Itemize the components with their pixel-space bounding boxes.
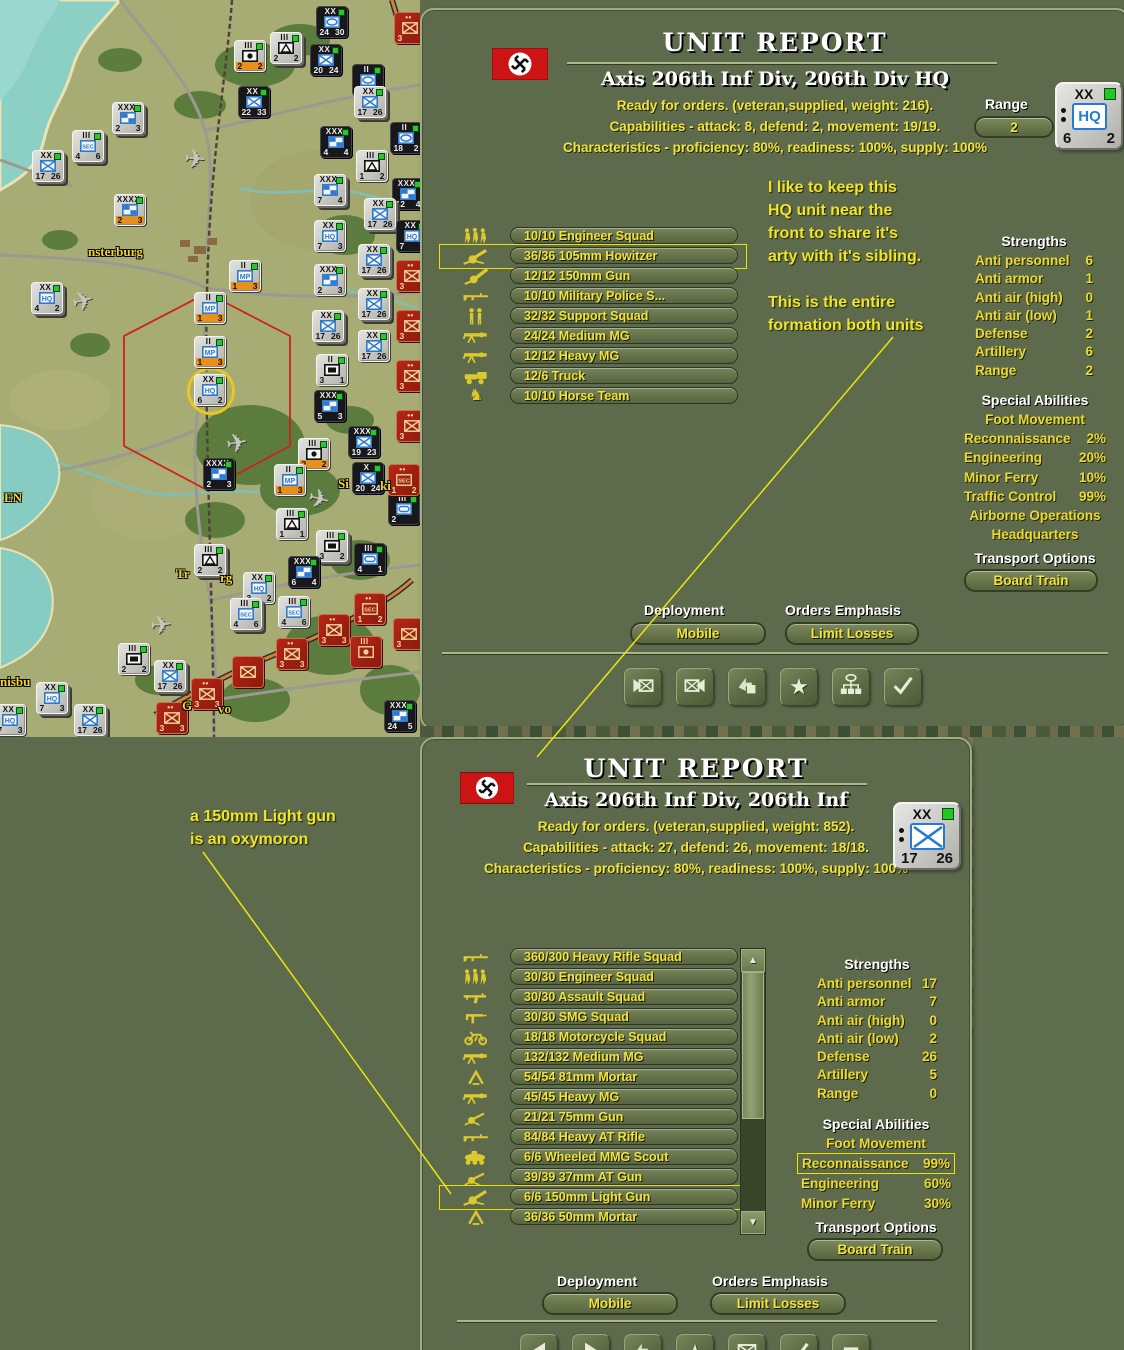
special-ability-row: Foot Movement — [797, 1134, 955, 1153]
counter-size-label: XX — [895, 806, 949, 822]
unit-item-button[interactable]: 6/6 Wheeled MMG Scout — [510, 1148, 738, 1165]
unit-item-button[interactable]: 132/132 Medium MG — [510, 1048, 738, 1065]
map-unit-counter[interactable]: XX2430 — [316, 6, 348, 38]
special-ability-row: Minor Ferry30% — [797, 1194, 955, 1213]
unit-list-item[interactable]: 12/6 Truck — [442, 367, 744, 386]
special-ability-row: Reconnaissance99% — [797, 1153, 955, 1174]
svg-text:SEC: SEC — [364, 608, 376, 614]
map-unit-counter[interactable]: XXX23 — [112, 102, 144, 134]
map-unit-counter[interactable]: ••3 — [396, 360, 420, 392]
map-unit-counter[interactable]: XXX74 — [314, 174, 346, 206]
atgun-icon — [448, 1168, 504, 1186]
unit-name: Axis 206th Inf Div, 206th Inf — [422, 789, 970, 811]
unit-item-button[interactable]: 10/10 Engineer Squad — [510, 227, 738, 244]
deployment-button[interactable]: Mobile — [542, 1292, 678, 1315]
strengths-block: Strengths Anti personnel6Anti armor1Anti… — [975, 233, 1093, 380]
transport-options-title: Transport Options — [960, 550, 1110, 566]
map-unit-counter[interactable]: XXX64 — [288, 556, 320, 588]
strength-row: Artillery5 — [817, 1066, 937, 1084]
strengths-title: Strengths — [817, 956, 937, 972]
button-row-divider — [442, 652, 1108, 654]
unit-list-item[interactable]: ♞10/10 Horse Team — [442, 387, 744, 406]
player-annotation-bottom: a 150mm Light gun is an oxymoron — [190, 805, 336, 851]
map-unit-counter[interactable]: ••33 — [276, 638, 308, 670]
bent-arrow-icon — [735, 673, 759, 702]
svg-text:HQ: HQ — [407, 234, 418, 241]
aircraft-icon: ✈ — [224, 428, 250, 457]
status-line: Ready for orders. (veteran,supplied, wei… — [422, 819, 970, 834]
map-unit-counter[interactable]: XXHQ73 — [0, 704, 26, 736]
map-unit-counter[interactable]: IIMP13 — [194, 336, 226, 368]
map-unit-counter[interactable]: XXXX23 — [203, 458, 235, 490]
strength-row: Anti air (low)1 — [975, 307, 1093, 325]
unit-list-item[interactable]: 6/6 Wheeled MMG Scout — [442, 1148, 744, 1167]
strength-row: Range2 — [975, 362, 1093, 380]
strength-row: Defense2 — [975, 325, 1093, 343]
unit-list-item[interactable]: 18/18 Motorcycle Squad — [442, 1028, 744, 1047]
star-button[interactable]: ★ — [676, 1334, 714, 1350]
strengths-block: Strengths Anti personnel17Anti armor7Ant… — [817, 956, 937, 1103]
special-ability-row: Headquarters — [960, 525, 1110, 544]
squad-walking-icon — [448, 968, 504, 986]
deployment-button[interactable]: Mobile — [630, 622, 766, 645]
special-abilities-block: Special Abilities Foot MovementReconnais… — [960, 392, 1110, 544]
unit-item-button[interactable]: 36/36 105mm Howitzer — [510, 247, 738, 264]
star-icon: ★ — [789, 676, 809, 699]
unit-list-item[interactable]: 12/12 150mm Gun — [442, 267, 744, 286]
svg-text:SEC: SEC — [240, 613, 252, 619]
map-unit-counter[interactable]: ••3 — [396, 260, 420, 292]
unit-item-button[interactable]: 18/18 Motorcycle Squad — [510, 1028, 738, 1045]
map-unit-counter[interactable]: ••3 — [396, 410, 420, 442]
unit-item-button[interactable]: 84/84 Heavy AT Rifle — [510, 1128, 738, 1145]
rect-icon — [839, 1339, 863, 1350]
counter-attack-value: 6 — [1063, 130, 1071, 147]
title-rule — [567, 62, 997, 64]
map-place-label: Tr — [176, 566, 189, 582]
unit-list-item[interactable]: 30/30 Engineer Squad — [442, 968, 744, 987]
step-dots — [899, 828, 904, 846]
svg-text:HQ: HQ — [47, 696, 58, 703]
map-unit-counter[interactable]: III11 — [276, 508, 308, 540]
svg-text:SEC: SEC — [398, 479, 410, 485]
org-chart-button[interactable] — [832, 668, 870, 706]
unit-list-item[interactable]: 30/30 SMG Squad — [442, 1008, 744, 1027]
map-unit-counter[interactable]: XXX1923 — [348, 426, 380, 458]
unit-box-icon — [735, 1339, 759, 1350]
svg-text:MP: MP — [285, 478, 296, 485]
unit-list-item[interactable]: 132/132 Medium MG — [442, 1048, 744, 1067]
map-unit-counter[interactable]: XXHQ73 — [314, 220, 346, 252]
unit-item-button[interactable]: 24/24 Medium MG — [510, 327, 738, 344]
unit-list-item[interactable]: 360/300 Heavy Rifle Squad — [442, 948, 744, 967]
map-place-label: rg — [220, 570, 232, 586]
map-place-label: nisbu — [0, 674, 30, 690]
strength-row: Anti personnel6 — [975, 252, 1093, 270]
unit-item-button[interactable]: 360/300 Heavy Rifle Squad — [510, 948, 738, 965]
scroll-up-button[interactable]: ▲ — [741, 949, 765, 972]
infantry-symbol — [910, 823, 945, 850]
map-unit-counter[interactable]: XX1726 — [358, 288, 390, 320]
mg-icon — [448, 1088, 504, 1106]
unit-list-item[interactable]: 24/24 Medium MG — [442, 327, 744, 346]
map-unit-counter[interactable]: II31 — [316, 354, 348, 386]
orders-emphasis-button[interactable]: Limit Losses — [785, 622, 919, 645]
unit-list-item[interactable]: 30/30 Assault Squad — [442, 988, 744, 1007]
map-unit-counter[interactable]: ••3 — [394, 12, 420, 44]
scroll-down-button[interactable]: ▼ — [741, 1211, 765, 1234]
right-tri-button[interactable] — [572, 1334, 610, 1350]
unit-list-item[interactable]: 36/36 105mm Howitzer — [442, 247, 744, 266]
unit-list-item[interactable]: 36/36 50mm Mortar — [442, 1208, 744, 1227]
range-value: 2 — [974, 116, 1054, 138]
strength-row: Anti armor1 — [975, 270, 1093, 288]
map-place-label: ki — [380, 478, 391, 494]
rifle-icon — [448, 287, 504, 305]
button-row-divider — [457, 1320, 937, 1322]
special-abilities-title: Special Abilities — [960, 392, 1110, 408]
map-unit-counter[interactable]: XX1726 — [32, 150, 64, 182]
characteristics-line: Characteristics - proficiency: 80%, read… — [422, 861, 970, 876]
unit-right-icon — [683, 673, 707, 702]
check-icon — [787, 1339, 811, 1350]
unit-item-button[interactable]: 39/39 37mm AT Gun — [510, 1168, 738, 1185]
map-unit-counter[interactable]: XXX53 — [314, 390, 346, 422]
assault-icon — [448, 988, 504, 1006]
app-window: XX2430III22III22XX2024II23XX1726II182XX2… — [0, 0, 1124, 1350]
gun-icon — [448, 267, 504, 285]
unit-left-button[interactable] — [624, 668, 662, 706]
special-ability-row: Traffic Control99% — [960, 487, 1110, 506]
capabilities-line: Capabilities - attack: 27, defend: 26, m… — [422, 840, 970, 855]
map-unit-counter[interactable]: XXHQ42 — [31, 282, 63, 314]
map-unit-counter[interactable]: IIMP13 — [274, 464, 306, 496]
truck-icon — [448, 367, 504, 385]
range-label: Range — [985, 96, 1028, 112]
map-gap — [420, 726, 1124, 737]
unit-item-button[interactable]: 30/30 Engineer Squad — [510, 968, 738, 985]
unit-right-button[interactable] — [676, 668, 714, 706]
moto-icon — [448, 1028, 504, 1046]
mg-icon — [448, 347, 504, 365]
map-unit-counter[interactable]: XX2024 — [310, 44, 342, 76]
map-unit-counter[interactable]: ••33 — [318, 614, 350, 646]
map-unit-counter[interactable]: III — [350, 636, 382, 668]
special-ability-row: Minor Ferry10% — [960, 468, 1110, 487]
map-unit-counter[interactable]: XXHQ7 — [396, 220, 420, 252]
map-unit-counter[interactable]: IIISEC46 — [72, 130, 104, 162]
mg-icon — [448, 327, 504, 345]
unit-item-button[interactable]: 12/12 150mm Gun — [510, 267, 738, 284]
deployment-label: Deployment — [557, 1273, 637, 1289]
special-ability-row: Reconnaissance2% — [960, 429, 1110, 448]
title-rule — [527, 783, 867, 785]
strength-row: Anti air (high)0 — [975, 289, 1093, 307]
unit-item-button[interactable]: 45/45 Heavy MG — [510, 1088, 738, 1105]
svg-text:MP: MP — [205, 350, 216, 357]
orders-emphasis-label: Orders Emphasis — [785, 602, 901, 618]
map-place-label: Si — [338, 476, 349, 492]
map-place-label: vo — [218, 701, 231, 717]
howitzer-icon — [448, 247, 504, 265]
map-unit-counter[interactable]: XXHQ62 — [194, 374, 226, 406]
map-unit-counter[interactable]: XX1726 — [358, 244, 390, 276]
rifle-icon — [448, 1128, 504, 1146]
atgun-icon — [448, 1108, 504, 1126]
special-ability-row: Engineering60% — [797, 1174, 955, 1193]
unit-counter-infantry[interactable]: XX 17 26 — [893, 802, 961, 870]
scout-car-icon — [448, 1148, 504, 1166]
unit-left-icon — [631, 673, 655, 702]
strength-row: Artillery6 — [975, 343, 1093, 361]
map-unit-counter[interactable]: II182 — [390, 122, 420, 154]
map-unit-counter[interactable]: XXXX23 — [114, 194, 146, 226]
unit-list-item[interactable]: 10/10 Military Police S... — [442, 287, 744, 306]
counter-move-value: 2 — [1107, 130, 1115, 147]
unit-list-item[interactable]: 21/21 75mm Gun — [442, 1108, 744, 1127]
unit-item-button[interactable]: 30/30 Assault Squad — [510, 988, 738, 1005]
strength-row: Anti air (low)2 — [817, 1030, 937, 1048]
map-unit-counter[interactable]: IIISEC46 — [278, 596, 310, 628]
right-tri-icon — [579, 1339, 603, 1350]
howitzer-icon — [448, 1188, 504, 1206]
board-train-button[interactable]: Board Train — [807, 1238, 943, 1261]
unit-list-item[interactable]: 39/39 37mm AT Gun — [442, 1168, 744, 1187]
rect-button[interactable] — [832, 1334, 870, 1350]
background-strip — [968, 737, 1124, 1350]
map-unit-counter[interactable]: XXX23 — [314, 264, 346, 296]
map-unit-counter[interactable]: XX1726 — [354, 86, 386, 118]
map-unit-counter[interactable]: XXX124 — [392, 178, 420, 210]
check-button[interactable] — [780, 1334, 818, 1350]
strength-row: Anti armor7 — [817, 993, 937, 1011]
svg-text:MP: MP — [240, 274, 251, 281]
map-unit-counter[interactable]: XX2233 — [238, 86, 270, 118]
org-chart-icon — [839, 673, 863, 702]
map-unit-counter[interactable]: IIMP13 — [229, 260, 261, 292]
mg-icon — [448, 1048, 504, 1066]
svg-text:SEC: SEC — [82, 145, 94, 151]
unit-item-button[interactable]: 54/54 81mm Mortar — [510, 1068, 738, 1085]
transport-options-title: Transport Options — [797, 1219, 955, 1235]
unit-list-item[interactable]: 10/10 Engineer Squad — [442, 227, 744, 246]
map-unit-counter[interactable]: XXX245 — [384, 700, 416, 732]
special-abilities-title: Special Abilities — [797, 1116, 955, 1132]
unit-report-panel-bottom: UNIT REPORT Axis 206th Inf Div, 206th In… — [420, 737, 972, 1350]
map-unit-counter[interactable]: XX1726 — [154, 660, 186, 692]
unit-item-button[interactable]: 32/32 Support Squad — [510, 307, 738, 324]
unit-item-button[interactable]: 10/10 Horse Team — [510, 387, 738, 404]
map-unit-counter[interactable]: ••SEC12 — [388, 464, 420, 496]
map-unit-counter[interactable]: ••3 — [396, 310, 420, 342]
special-abilities-block: Special Abilities Foot MovementReconnais… — [797, 1116, 955, 1213]
scrollbar-thumb[interactable] — [742, 972, 764, 1119]
unit-counter-hq[interactable]: XX HQ 6 2 — [1055, 82, 1123, 150]
special-ability-row: Foot Movement — [960, 410, 1110, 429]
map-unit-counter[interactable]: III41 — [354, 543, 386, 575]
smg-icon — [448, 1008, 504, 1026]
map-unit-counter[interactable] — [232, 656, 264, 688]
squad-standing-icon — [448, 307, 504, 325]
step-dots — [1061, 108, 1066, 126]
bent-arrow-button[interactable] — [624, 1334, 662, 1350]
unit-item-button[interactable]: 36/36 50mm Mortar — [510, 1208, 738, 1225]
special-ability-row: Engineering20% — [960, 448, 1110, 467]
map-unit-counter[interactable]: IIMP13 — [194, 292, 226, 324]
map-place-label: EN — [4, 490, 22, 506]
bent-arrow-icon — [631, 1339, 655, 1350]
map-place-label: G — [182, 698, 192, 714]
map-unit-counter[interactable]: III22 — [118, 643, 150, 675]
unit-list-item[interactable]: 6/6 150mm Light Gun — [442, 1188, 744, 1207]
check-icon — [891, 673, 915, 702]
special-ability-row: Airborne Operations — [960, 506, 1110, 525]
counter-move-value: 26 — [936, 850, 953, 867]
svg-text:HQ: HQ — [5, 718, 16, 725]
unit-item-button[interactable]: 30/30 SMG Squad — [510, 1008, 738, 1025]
star-button[interactable]: ★ — [780, 668, 818, 706]
star-icon: ★ — [685, 1342, 705, 1350]
deployment-label: Deployment — [644, 602, 724, 618]
board-train-button[interactable]: Board Train — [964, 569, 1098, 592]
strength-row: Defense26 — [817, 1048, 937, 1066]
mortar-icon — [448, 1068, 504, 1086]
orders-emphasis-button[interactable]: Limit Losses — [710, 1292, 846, 1315]
mortar-icon — [448, 1208, 504, 1226]
svg-text:HQ: HQ — [254, 586, 265, 593]
map-unit-counter[interactable]: III12 — [356, 150, 388, 182]
bent-arrow-button[interactable] — [728, 668, 766, 706]
map-unit-counter[interactable]: ••SEC12 — [354, 593, 386, 625]
map-unit-counter[interactable]: 3 — [393, 618, 420, 650]
unit-item-button[interactable]: 21/21 75mm Gun — [510, 1108, 738, 1125]
map-unit-counter[interactable]: XX1726 — [358, 330, 390, 362]
game-map[interactable]: XX2430III22III22XX2024II23XX1726II182XX2… — [0, 0, 420, 737]
unit-report-panel-top: UNIT REPORT Axis 206th Inf Div, 206th Di… — [420, 8, 1124, 730]
map-unit-counter[interactable]: XXHQ73 — [36, 682, 68, 714]
rifle-icon — [448, 948, 504, 966]
unit-item-button[interactable]: 6/6 150mm Light Gun — [510, 1188, 738, 1205]
player-annotation-top: I like to keep thisHQ unit near the fron… — [768, 176, 924, 337]
map-unit-counter[interactable]: XXX44 — [320, 126, 352, 158]
check-button[interactable] — [884, 668, 922, 706]
horse-icon: ♞ — [448, 387, 504, 405]
map-unit-counter[interactable]: IIISEC46 — [230, 598, 262, 630]
map-unit-counter[interactable]: XX1726 — [364, 198, 396, 230]
map-unit-counter[interactable]: III32 — [316, 530, 348, 562]
aircraft-icon: ✈ — [149, 611, 173, 639]
hq-symbol: HQ — [1072, 103, 1107, 130]
unit-box-button[interactable] — [728, 1334, 766, 1350]
strength-row: Anti personnel17 — [817, 975, 937, 993]
svg-text:HQ: HQ — [42, 296, 53, 303]
svg-text:HQ: HQ — [205, 388, 216, 395]
status-dot — [1104, 88, 1116, 100]
aircraft-icon: ✈ — [183, 145, 207, 173]
strength-row: Range0 — [817, 1085, 937, 1103]
characteristics-line: Characteristics - proficiency: 80%, read… — [422, 140, 1124, 155]
squad-walking-icon — [448, 227, 504, 245]
orders-emphasis-label: Orders Emphasis — [712, 1273, 828, 1289]
unit-name: Axis 206th Inf Div, 206th Div HQ — [422, 68, 1124, 90]
map-unit-counter[interactable]: III22 — [270, 32, 302, 64]
map-unit-counter[interactable]: XX1726 — [312, 310, 344, 342]
unit-list-item[interactable]: 32/32 Support Squad — [442, 307, 744, 326]
map-unit-counter[interactable]: III2 — [388, 493, 420, 525]
map-unit-counter[interactable]: III22 — [234, 40, 266, 72]
strength-row: Anti air (high)0 — [817, 1012, 937, 1030]
unit-item-button[interactable]: 12/6 Truck — [510, 367, 738, 384]
unit-list-item[interactable]: 45/45 Heavy MG — [442, 1088, 744, 1107]
unit-list-item[interactable]: 54/54 81mm Mortar — [442, 1068, 744, 1087]
svg-text:MP: MP — [205, 306, 216, 313]
counter-attack-value: 17 — [901, 850, 918, 867]
unit-list-item[interactable]: 12/12 Heavy MG — [442, 347, 744, 366]
svg-text:HQ: HQ — [325, 234, 336, 241]
left-tri-icon — [527, 1339, 551, 1350]
counter-size-label: XX — [1057, 86, 1111, 102]
map-place-label: nsterburg — [88, 244, 143, 260]
left-tri-button[interactable] — [520, 1334, 558, 1350]
status-dot — [942, 808, 954, 820]
unit-item-button[interactable]: 10/10 Military Police S... — [510, 287, 738, 304]
unit-list-scrollbar[interactable]: ▲ ▼ — [740, 948, 766, 1235]
unit-list-item[interactable]: 84/84 Heavy AT Rifle — [442, 1128, 744, 1147]
unit-item-button[interactable]: 12/12 Heavy MG — [510, 347, 738, 364]
map-unit-counter[interactable]: XX1726 — [74, 704, 106, 736]
svg-text:SEC: SEC — [288, 611, 300, 617]
strengths-title: Strengths — [975, 233, 1093, 249]
